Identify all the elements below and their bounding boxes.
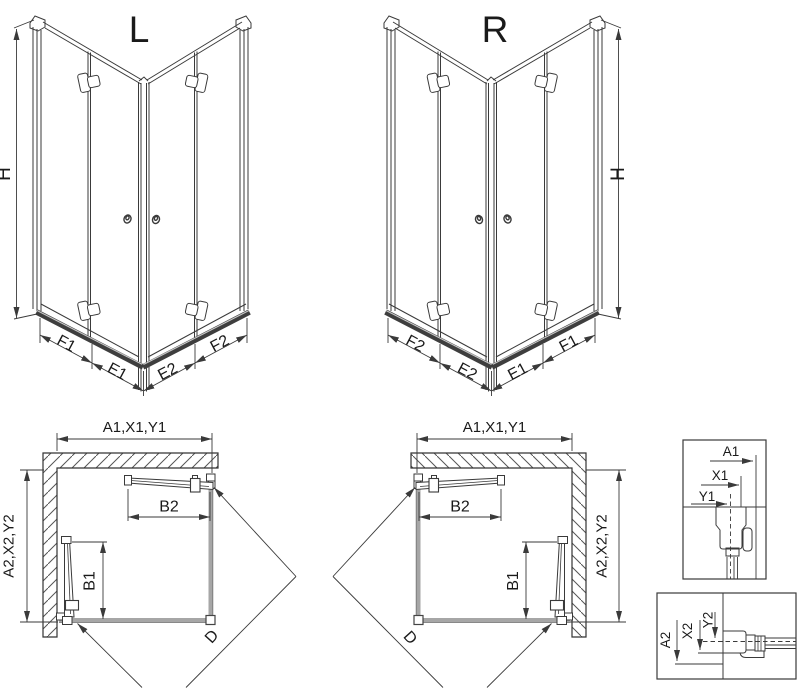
plan-width-label-left: A1,X1,Y1 [103,419,166,436]
x2-detail-label: X2 [680,623,695,640]
b1-label-right: B1 [505,571,522,591]
back-right-profile [236,16,251,311]
dim-label-f1-left: F1 [54,332,79,356]
plan-depth-label-right: A2,X2,Y2 [594,514,611,577]
dim-label-h-left: H [0,167,15,181]
bifold-hinge-lines [88,52,197,341]
x1-detail-label: X1 [712,468,729,483]
d-label-left: D [202,627,222,647]
plan-unit-geometry [43,433,296,688]
a2-detail-label: A2 [658,632,673,649]
door-knob-icon [123,214,161,225]
hinge-hardware [77,71,208,321]
dim-label-e1-right: E1 [505,360,530,384]
b2-label-left: B2 [159,499,179,516]
wall-profile-section-bottom [723,631,796,658]
diagonal-dimension-lines [78,488,297,688]
y1-detail-label: Y1 [699,489,716,504]
folded-door-top [125,476,214,493]
glass-panels-plan [59,489,213,622]
technical-drawing: L H F1 E1 E2 F2 R H F2 E2 E1 F1 [0,0,800,688]
dim-label-e1-left: E1 [104,360,129,384]
drawing-canvas: L H F1 E1 E2 F2 R H F2 E2 E1 F1 [0,0,800,688]
front-corner-edges [139,82,150,392]
dim-label-e2-left: E2 [155,360,180,384]
wall-profile-section-top [716,507,752,579]
plan-right-unit [333,433,586,688]
y2-detail-label: Y2 [701,612,716,629]
detail-bottom-labels: A2 X2 Y2 [658,612,716,649]
dim-label-h-right: H [608,167,629,181]
corner-connector [206,616,215,625]
a1-detail-label: A1 [723,444,740,459]
d-label-right: D [400,628,420,648]
dim-label-e2-right: E2 [454,360,479,384]
detail-top-labels: A1 X1 Y1 [699,444,740,504]
b2-label-right: B2 [450,499,470,516]
detail-box-bottom [657,593,796,679]
dim-label-f1-right: F1 [557,332,582,356]
plan-width-label-right: A1,X1,Y1 [463,419,526,436]
b1-label-left: B1 [82,571,99,591]
back-left-profile [30,16,45,311]
height-dimension-line [14,20,37,319]
detail-box-top [683,440,766,579]
variant-label-right: R [482,9,509,50]
plan-depth-label-left: A2,X2,Y2 [1,514,18,577]
dim-label-f2-right: F2 [403,332,428,356]
variant-label-left: L [129,9,150,50]
dim-label-f2-left: F2 [208,332,233,356]
folded-door-left [57,537,79,625]
